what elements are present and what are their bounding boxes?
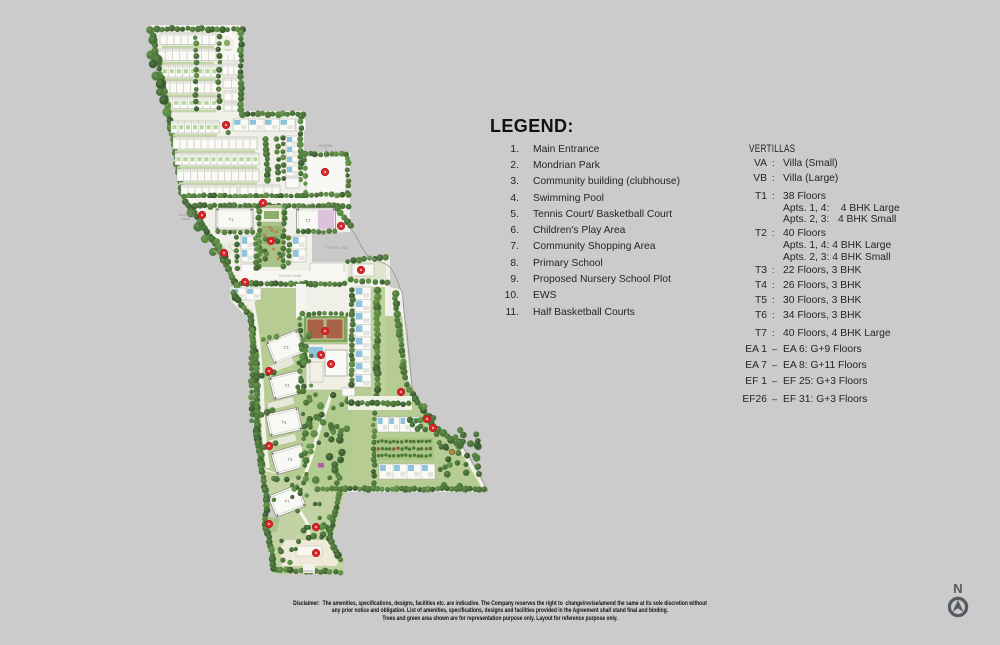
svg-text:T7: T7 — [285, 499, 291, 504]
svg-text:T2: T2 — [306, 218, 312, 223]
svg-text:SCHOOL: SCHOOL — [319, 144, 333, 148]
svg-text:T5: T5 — [282, 420, 288, 425]
svg-text:T6: T6 — [288, 457, 294, 462]
svg-text:T3: T3 — [284, 345, 290, 350]
svg-text:ENTRANCE PLAZA: ENTRANCE PLAZA — [297, 569, 324, 573]
svg-text:OTHERS LAND: OTHERS LAND — [325, 246, 348, 250]
svg-text:T4: T4 — [285, 383, 291, 388]
svg-text:T1: T1 — [229, 217, 235, 222]
svg-text:STUDIO LANE: STUDIO LANE — [279, 274, 302, 278]
svg-text:ROAD: ROAD — [182, 217, 192, 221]
